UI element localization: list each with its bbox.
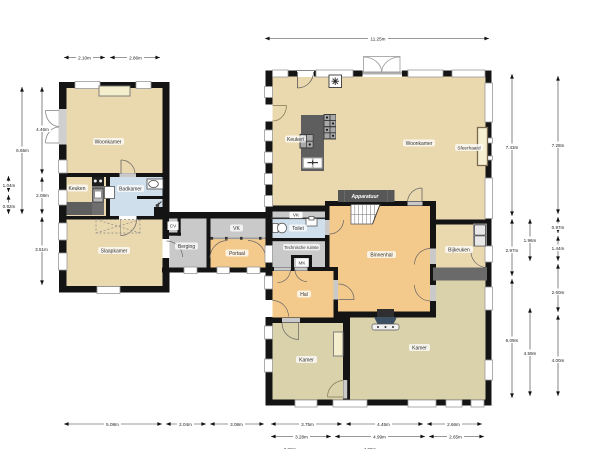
svg-text:Keuken: Keuken [287,137,304,143]
svg-text:Slaapkamer: Slaapkamer [101,249,128,255]
svg-text:2.86m: 2.86m [129,55,142,60]
svg-text:4.46m: 4.46m [36,127,49,132]
svg-text:2.65m: 2.65m [449,434,462,439]
svg-text:3.75m: 3.75m [301,422,314,427]
svg-text:6.65m: 6.65m [16,148,29,153]
svg-text:Binnenhal: Binnenhal [370,253,392,259]
svg-text:Technische ruimte: Technische ruimte [284,245,319,250]
svg-text:2.04m: 2.04m [179,422,192,427]
svg-text:Berging: Berging [178,244,195,250]
svg-text:VK: VK [233,226,240,232]
svg-text:7.28m: 7.28m [552,143,565,148]
svg-text:Woonkamer: Woonkamer [95,140,122,146]
svg-text:Toilet: Toilet [292,226,304,232]
svg-text:2.08m: 2.08m [36,193,49,198]
svg-text:0.97m: 0.97m [552,225,565,230]
svg-text:6.09m: 6.09m [506,338,519,343]
svg-text:Sfeerhaard: Sfeerhaard [457,145,481,150]
svg-text:2.60m: 2.60m [552,290,565,295]
svg-text:2.97m: 2.97m [506,248,519,253]
svg-text:MK: MK [299,260,307,265]
svg-text:Apparatuur: Apparatuur [351,194,380,200]
svg-text:Portaal: Portaal [229,251,245,257]
svg-text:CV: CV [170,224,177,229]
svg-text:2.10m: 2.10m [78,55,91,60]
svg-text:Woonkamer: Woonkamer [406,141,433,147]
svg-text:2.66m: 2.66m [447,422,460,427]
svg-text:3.28m: 3.28m [295,434,308,439]
svg-text:4.99m: 4.99m [373,434,386,439]
svg-text:4.45m: 4.45m [377,422,390,427]
svg-text:4.59m: 4.59m [524,351,537,356]
svg-text:Hal: Hal [300,292,308,298]
svg-text:7.43m: 7.43m [506,145,519,150]
svg-text:5.08m: 5.08m [106,422,119,427]
svg-text:Badkamer: Badkamer [119,187,142,193]
svg-text:Keuken: Keuken [69,186,86,192]
svg-text:Bijkeuken: Bijkeuken [448,248,470,254]
svg-text:1.96m: 1.96m [524,238,537,243]
svg-text:VK: VK [293,213,300,218]
svg-text:11.25m: 11.25m [371,36,386,41]
svg-text:1.04m: 1.04m [3,183,16,188]
svg-text:3.08m: 3.08m [230,422,243,427]
svg-text:3.51m: 3.51m [35,247,48,252]
svg-text:Kamer: Kamer [412,346,427,352]
svg-text:1.44m: 1.44m [552,246,565,251]
svg-text:0.92m: 0.92m [3,204,16,209]
svg-text:4.00m: 4.00m [552,358,565,363]
svg-text:Kamer: Kamer [299,358,314,364]
